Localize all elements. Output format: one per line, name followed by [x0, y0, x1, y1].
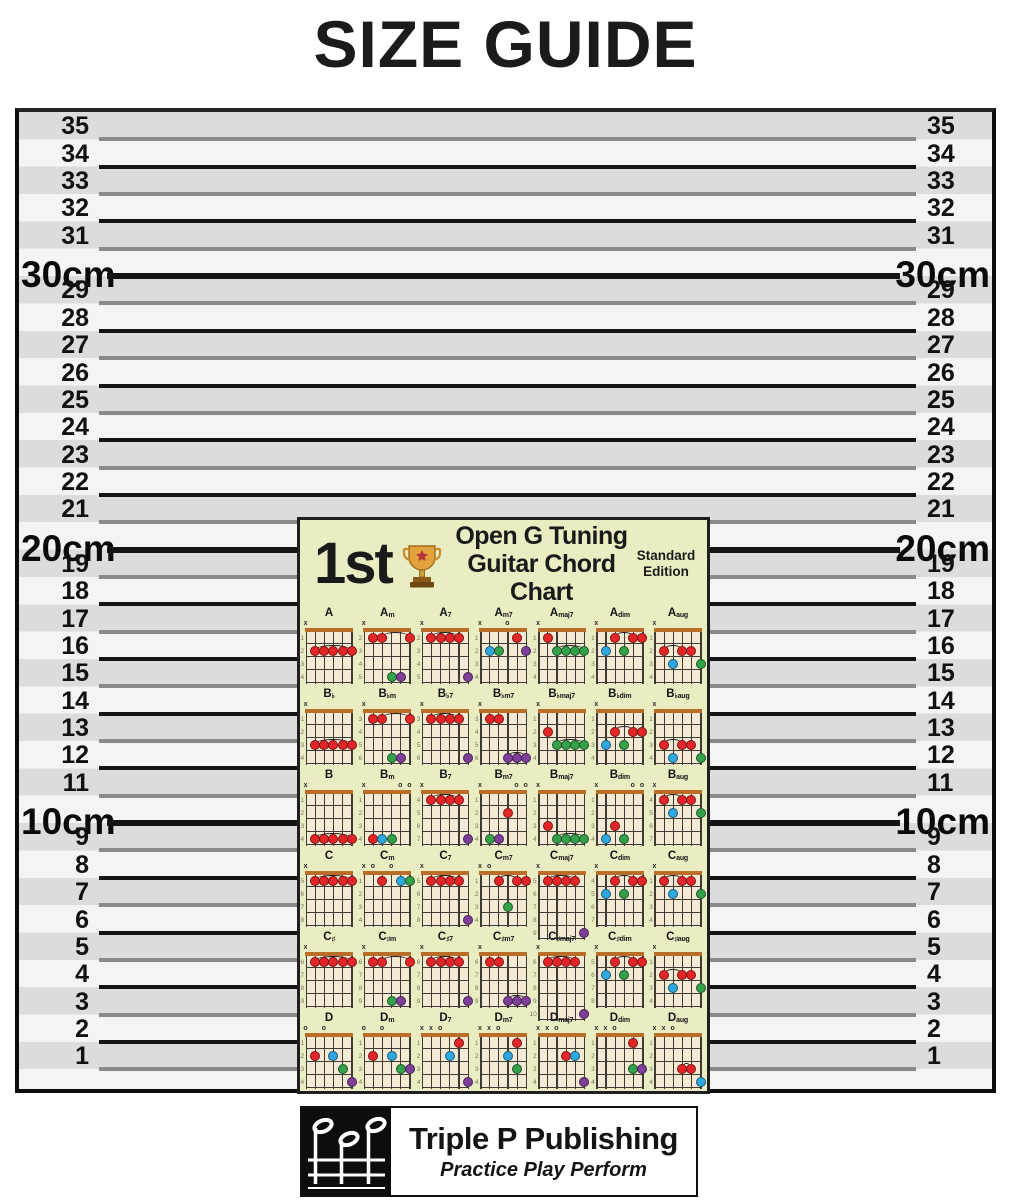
string-line — [480, 713, 482, 765]
open-marker-icon: o — [494, 1025, 502, 1033]
fret-number: 1 — [646, 878, 653, 885]
fret-line — [422, 750, 469, 751]
fretboard-nut — [596, 952, 644, 956]
finger-dot-B — [601, 834, 611, 844]
string-line — [333, 1037, 334, 1089]
string-line — [422, 1037, 424, 1089]
fret-number: 5 — [413, 742, 420, 749]
fret-number: 3 — [297, 1066, 304, 1073]
edition-label: Standard Edition — [635, 548, 697, 580]
chord-cell-C#7: C♯7x6789 — [416, 930, 474, 1011]
fret-number: 3 — [588, 742, 595, 749]
fret-number: 3 — [297, 823, 304, 830]
string-markers: x — [538, 944, 585, 952]
finger-dot-R — [610, 957, 620, 967]
fret-line — [364, 750, 411, 751]
chord-root: C — [493, 931, 501, 943]
fret-line — [538, 1061, 585, 1062]
chord-name: Daug — [649, 1012, 707, 1025]
chord-root: C — [494, 850, 502, 862]
open-marker-icon: o — [369, 863, 377, 871]
fretboard-nut — [596, 628, 644, 632]
string-line — [480, 875, 482, 927]
chord-root: B — [439, 769, 447, 781]
string-line — [391, 1037, 392, 1089]
string-line — [373, 875, 374, 927]
string-line — [615, 794, 616, 846]
fret-line — [480, 886, 527, 887]
chord-name: B♭maj7 — [533, 688, 591, 701]
fret-line — [654, 1087, 701, 1088]
fret-number: 3 — [646, 742, 653, 749]
mute-marker-icon: x — [302, 701, 310, 709]
fret-number: 7 — [413, 972, 420, 979]
fret-line — [538, 643, 585, 644]
fret-line — [596, 899, 643, 900]
chord-suffix: m — [388, 855, 394, 862]
chord-suffix: ♭dim — [616, 693, 631, 700]
chord-root: A — [610, 607, 618, 619]
fretboard-nut — [654, 790, 702, 794]
fret-line — [654, 844, 701, 845]
chord-board: 5678 — [422, 871, 469, 927]
ruler-number-right-23: 23 — [927, 443, 977, 468]
mute-marker-icon: x — [485, 1025, 493, 1033]
chord-board: 4567 — [654, 790, 701, 846]
open-marker-icon: o — [436, 1025, 444, 1033]
string-markers: xxo — [422, 1025, 469, 1033]
finger-dot-G — [338, 1064, 348, 1074]
fret-line — [596, 669, 643, 670]
fret-line — [422, 669, 469, 670]
ruler-line-27 — [99, 356, 916, 360]
mute-marker-icon: x — [660, 1025, 668, 1033]
fretboard-nut — [421, 628, 469, 632]
fret-line — [422, 1074, 469, 1075]
ruler-number-left-26: 26 — [47, 361, 89, 386]
chord-root: D — [325, 1012, 333, 1024]
chord-name: Am — [358, 607, 416, 620]
finger-dot-B — [668, 808, 678, 818]
fret-number: 4 — [413, 797, 420, 804]
fretboard-nut — [305, 952, 353, 956]
chord-suffix: aug — [676, 612, 688, 619]
fret-number: 3 — [297, 742, 304, 749]
finger-dot-B — [668, 889, 678, 899]
chord-name: Bmaj7 — [533, 769, 591, 782]
fret-number: 6 — [530, 891, 537, 898]
fret-line — [538, 737, 585, 738]
chord-root: A — [325, 607, 333, 619]
fret-line — [654, 643, 701, 644]
finger-dot-G — [494, 646, 504, 656]
fret-number: 9 — [413, 998, 420, 1005]
publisher-banner: Triple P Publishing Practice Play Perfor… — [300, 1106, 698, 1197]
chord-root: B — [323, 688, 331, 700]
string-markers: xo — [480, 620, 527, 628]
fret-line — [596, 967, 643, 968]
fret-line — [538, 1048, 585, 1049]
string-markers: x — [306, 620, 353, 628]
fret-number: 2 — [646, 972, 653, 979]
fret-number: 5 — [297, 878, 304, 885]
fret-number: 2 — [471, 1053, 478, 1060]
ruler-number-left-29: 29 — [47, 278, 89, 303]
mute-marker-icon: x — [592, 944, 600, 952]
fret-number: 7 — [297, 972, 304, 979]
finger-dot-R — [686, 646, 696, 656]
ruler-number-right-11: 11 — [927, 771, 977, 796]
finger-dot-G — [619, 970, 629, 980]
mute-marker-icon: x — [534, 944, 542, 952]
string-line — [315, 632, 316, 684]
string-line — [306, 1037, 308, 1089]
string-line — [615, 713, 616, 765]
fret-number: 3 — [355, 1066, 362, 1073]
chord-suffix: ♯ — [332, 936, 335, 943]
fret-line — [596, 724, 643, 725]
fret-number: 7 — [413, 836, 420, 843]
chord-board: 1234 — [306, 1033, 353, 1089]
string-line — [498, 632, 499, 684]
ruler-number-right-9: 9 — [927, 825, 977, 850]
chord-suffix: m — [388, 774, 394, 781]
fret-number: 9 — [530, 998, 537, 1005]
fretboard-nut — [305, 790, 353, 794]
finger-dot-R — [543, 727, 553, 737]
fret-line — [538, 682, 585, 683]
fret-number: 7 — [588, 985, 595, 992]
fret-number: 6 — [355, 959, 362, 966]
fret-number: 4 — [646, 755, 653, 762]
fretboard-nut — [596, 709, 644, 713]
fretboard-nut — [538, 1033, 586, 1037]
fret-line — [422, 1061, 469, 1062]
fret-line — [538, 980, 585, 981]
fret-number: 4 — [530, 1079, 537, 1086]
fret-number: 2 — [530, 729, 537, 736]
fret-number: 1 — [355, 797, 362, 804]
string-line — [315, 713, 316, 765]
finger-dot-R — [512, 633, 522, 643]
fret-line — [306, 656, 353, 657]
string-markers: x — [596, 944, 643, 952]
fretboard-nut — [479, 871, 527, 875]
fret-number: 7 — [297, 904, 304, 911]
fretboard-nut — [654, 1033, 702, 1037]
fret-line — [306, 844, 353, 845]
string-line — [400, 1037, 401, 1089]
string-line — [364, 632, 366, 684]
chord-board: 1234 — [538, 1033, 585, 1089]
fret-line — [306, 1087, 353, 1088]
string-line — [351, 713, 353, 765]
string-line — [624, 956, 625, 1008]
string-line — [596, 956, 598, 1008]
fretboard-nut — [596, 1033, 644, 1037]
fret-number: 1 — [646, 635, 653, 642]
fret-number: 4 — [355, 836, 362, 843]
ruler-number-left-4: 4 — [47, 962, 89, 987]
chord-suffix: 7 — [448, 1017, 452, 1024]
string-line — [507, 632, 508, 684]
chord-cell-Bdim: Bdimxoo1234 — [591, 768, 649, 849]
ruler-number-right-29: 29 — [927, 278, 977, 303]
chord-name: Dm — [358, 1012, 416, 1025]
string-markers: x — [596, 701, 643, 709]
string-line — [691, 632, 692, 684]
fret-number: 8 — [297, 985, 304, 992]
fret-line — [596, 763, 643, 764]
chord-board: 1234 — [654, 952, 701, 1008]
mute-marker-icon: x — [592, 782, 600, 790]
chord-name: Bm7 — [474, 769, 532, 782]
fret-number: 3 — [471, 904, 478, 911]
fret-number: 2 — [297, 810, 304, 817]
finger-dot-R — [328, 740, 338, 750]
fretboard-nut — [538, 871, 586, 875]
string-line — [440, 1037, 441, 1089]
string-line — [596, 875, 598, 927]
finger-dot-R — [494, 876, 504, 886]
ruler-line-26 — [99, 384, 916, 388]
finger-dot-R — [494, 714, 504, 724]
open-marker-icon: o — [522, 782, 530, 790]
ruler-number-right-28: 28 — [927, 306, 977, 331]
chord-root: D — [610, 1012, 618, 1024]
chord-cell-B7: B7x4567 — [416, 768, 474, 849]
string-line — [538, 713, 540, 765]
fretboard-nut — [421, 871, 469, 875]
fret-line — [480, 818, 527, 819]
ruler-number-right-21: 21 — [927, 497, 977, 522]
fretboard-nut — [596, 871, 644, 875]
fret-number: 8 — [471, 985, 478, 992]
mute-marker-icon: x — [534, 863, 542, 871]
fret-number: 3 — [471, 1066, 478, 1073]
fret-line — [422, 925, 469, 926]
string-line — [364, 956, 366, 1008]
fret-line — [364, 818, 411, 819]
chord-name: Aaug — [649, 607, 707, 620]
chord-board: 1234 — [654, 1033, 701, 1089]
chord-root: B — [668, 769, 676, 781]
finger-dot-R — [377, 633, 387, 643]
fret-number: 2 — [355, 810, 362, 817]
fret-number: 4 — [530, 674, 537, 681]
fretboard-nut — [363, 952, 411, 956]
chord-root: B — [438, 688, 446, 700]
chord-root: B — [610, 769, 618, 781]
open-marker-icon: o — [513, 782, 521, 790]
chord-cell-Bbmaj7: B♭maj7x1234 — [533, 687, 591, 768]
string-line — [306, 794, 308, 846]
fret-number: 5 — [530, 878, 537, 885]
string-line — [664, 1037, 665, 1089]
chord-root: C — [439, 850, 447, 862]
string-line — [682, 1037, 683, 1089]
chord-name: B♭dim — [591, 688, 649, 701]
fret-number: 7 — [588, 917, 595, 924]
ruler-number-left-5: 5 — [47, 935, 89, 960]
fret-line — [654, 967, 701, 968]
finger-dot-R — [494, 957, 504, 967]
finger-dot-B — [601, 740, 611, 750]
ruler-number-left-17: 17 — [47, 607, 89, 632]
chord-cell-D: Doo1234 — [300, 1011, 358, 1092]
chord-cell-Bmaj7: Bmaj7x1234 — [533, 768, 591, 849]
chord-board: 1234 — [654, 871, 701, 927]
fret-line — [364, 1074, 411, 1075]
fret-number: 5 — [646, 810, 653, 817]
ruler-line-31 — [99, 247, 916, 251]
finger-dot-B — [503, 1051, 513, 1061]
chord-name: C7 — [416, 850, 474, 863]
string-markers: x — [654, 782, 701, 790]
chord-suffix: ♭m — [387, 693, 396, 700]
fret-line — [480, 682, 527, 683]
finger-dot-R — [328, 646, 338, 656]
finger-dot-R — [686, 876, 696, 886]
finger-dot-G — [696, 659, 706, 669]
string-line — [596, 713, 598, 765]
fret-number: 2 — [646, 648, 653, 655]
finger-dot-R — [328, 834, 338, 844]
fretboard-nut — [363, 871, 411, 875]
chord-root: B — [548, 688, 556, 700]
open-marker-icon: o — [378, 1025, 386, 1033]
string-line — [605, 1037, 606, 1089]
fret-number: 4 — [413, 1079, 420, 1086]
fretboard-nut — [363, 628, 411, 632]
fret-number: 4 — [646, 1079, 653, 1086]
fret-line — [538, 1074, 585, 1075]
string-line — [364, 1037, 366, 1089]
fretboard-nut — [363, 709, 411, 713]
fret-number: 5 — [413, 674, 420, 681]
chord-board: 2345 — [364, 628, 411, 684]
ruler-number-left-31: 31 — [47, 224, 89, 249]
chord-cell-Dm7: Dm7xxo1234 — [474, 1011, 532, 1092]
fret-line — [654, 1061, 701, 1062]
open-marker-icon: o — [302, 1025, 310, 1033]
mute-marker-icon: x — [601, 1025, 609, 1033]
ruler-number-left-34: 34 — [47, 142, 89, 167]
fret-number: 3 — [413, 1066, 420, 1073]
fretboard-nut — [363, 1033, 411, 1037]
fret-number: 4 — [530, 755, 537, 762]
string-line — [547, 794, 548, 846]
string-line — [526, 794, 528, 846]
fret-line — [538, 750, 585, 751]
string-markers: x — [596, 620, 643, 628]
fret-line — [422, 763, 469, 764]
fret-number: 2 — [355, 891, 362, 898]
chord-root: C — [378, 931, 386, 943]
chord-board: 1234 — [364, 1033, 411, 1089]
string-line — [391, 875, 392, 927]
finger-dot-G — [619, 889, 629, 899]
finger-dot-G — [387, 834, 397, 844]
string-line — [691, 1037, 692, 1089]
fret-line — [306, 1006, 353, 1007]
string-line — [596, 632, 598, 684]
fret-line — [306, 967, 353, 968]
mute-marker-icon: x — [302, 620, 310, 628]
first-place-badge: 1st — [314, 524, 392, 604]
ruler-number-right-17: 17 — [927, 607, 977, 632]
finger-dot-R — [454, 795, 464, 805]
chord-suffix: m — [388, 1017, 394, 1024]
fretboard-nut — [305, 628, 353, 632]
finger-dot-B — [445, 1051, 455, 1061]
ruler-number-right-6: 6 — [927, 908, 977, 933]
chord-board: 2345 — [422, 628, 469, 684]
finger-dot-R — [328, 876, 338, 886]
string-line — [382, 1037, 383, 1089]
mute-marker-icon: x — [418, 1025, 426, 1033]
fretboard-nut — [363, 790, 411, 794]
fret-line — [422, 1087, 469, 1088]
mute-marker-icon: x — [476, 1025, 484, 1033]
chord-board: 3456 — [480, 709, 527, 765]
fret-line — [654, 805, 701, 806]
fret-line — [538, 669, 585, 670]
chord-suffix: 7 — [448, 774, 452, 781]
chord-suffix: 7 — [448, 612, 452, 619]
finger-dot-R — [454, 1038, 464, 1048]
fret-line — [538, 1087, 585, 1088]
chord-board: 1234 — [480, 1033, 527, 1089]
chord-cell-C#dim: C♯dimx5678 — [591, 930, 649, 1011]
fret-line — [306, 912, 353, 913]
chord-suffix: ♯m7 — [501, 936, 514, 943]
finger-dot-R — [512, 1038, 522, 1048]
string-line — [664, 713, 665, 765]
ruler-number-left-19: 19 — [47, 552, 89, 577]
fret-line — [364, 993, 411, 994]
chord-board: 1234 — [596, 628, 643, 684]
mute-marker-icon: x — [360, 782, 368, 790]
string-line — [654, 632, 656, 684]
chord-root: A — [494, 607, 502, 619]
fret-number: 2 — [471, 891, 478, 898]
chord-suffix: ♭m7 — [501, 693, 514, 700]
chord-board: 4567 — [596, 871, 643, 927]
chord-suffix: aug — [676, 855, 688, 862]
ruler-number-right-14: 14 — [927, 689, 977, 714]
fret-number: 2 — [471, 648, 478, 655]
fretboard-nut — [654, 628, 702, 632]
chord-cell-Adim: Adimx1234 — [591, 606, 649, 687]
chord-suffix: aug — [676, 1017, 688, 1024]
fret-line — [596, 925, 643, 926]
chord-root: D — [494, 1012, 502, 1024]
fret-line — [654, 656, 701, 657]
finger-dot-R — [686, 1064, 696, 1074]
string-line — [449, 1037, 450, 1089]
ruler-line-28 — [99, 329, 916, 333]
mute-marker-icon: x — [360, 701, 368, 709]
finger-dot-P — [396, 672, 406, 682]
chord-name: Caug — [649, 850, 707, 863]
fret-line — [654, 763, 701, 764]
fret-number: 3 — [355, 904, 362, 911]
finger-dot-R — [659, 646, 669, 656]
fret-line — [422, 1048, 469, 1049]
chord-root: B — [325, 769, 333, 781]
fret-number: 4 — [471, 917, 478, 924]
